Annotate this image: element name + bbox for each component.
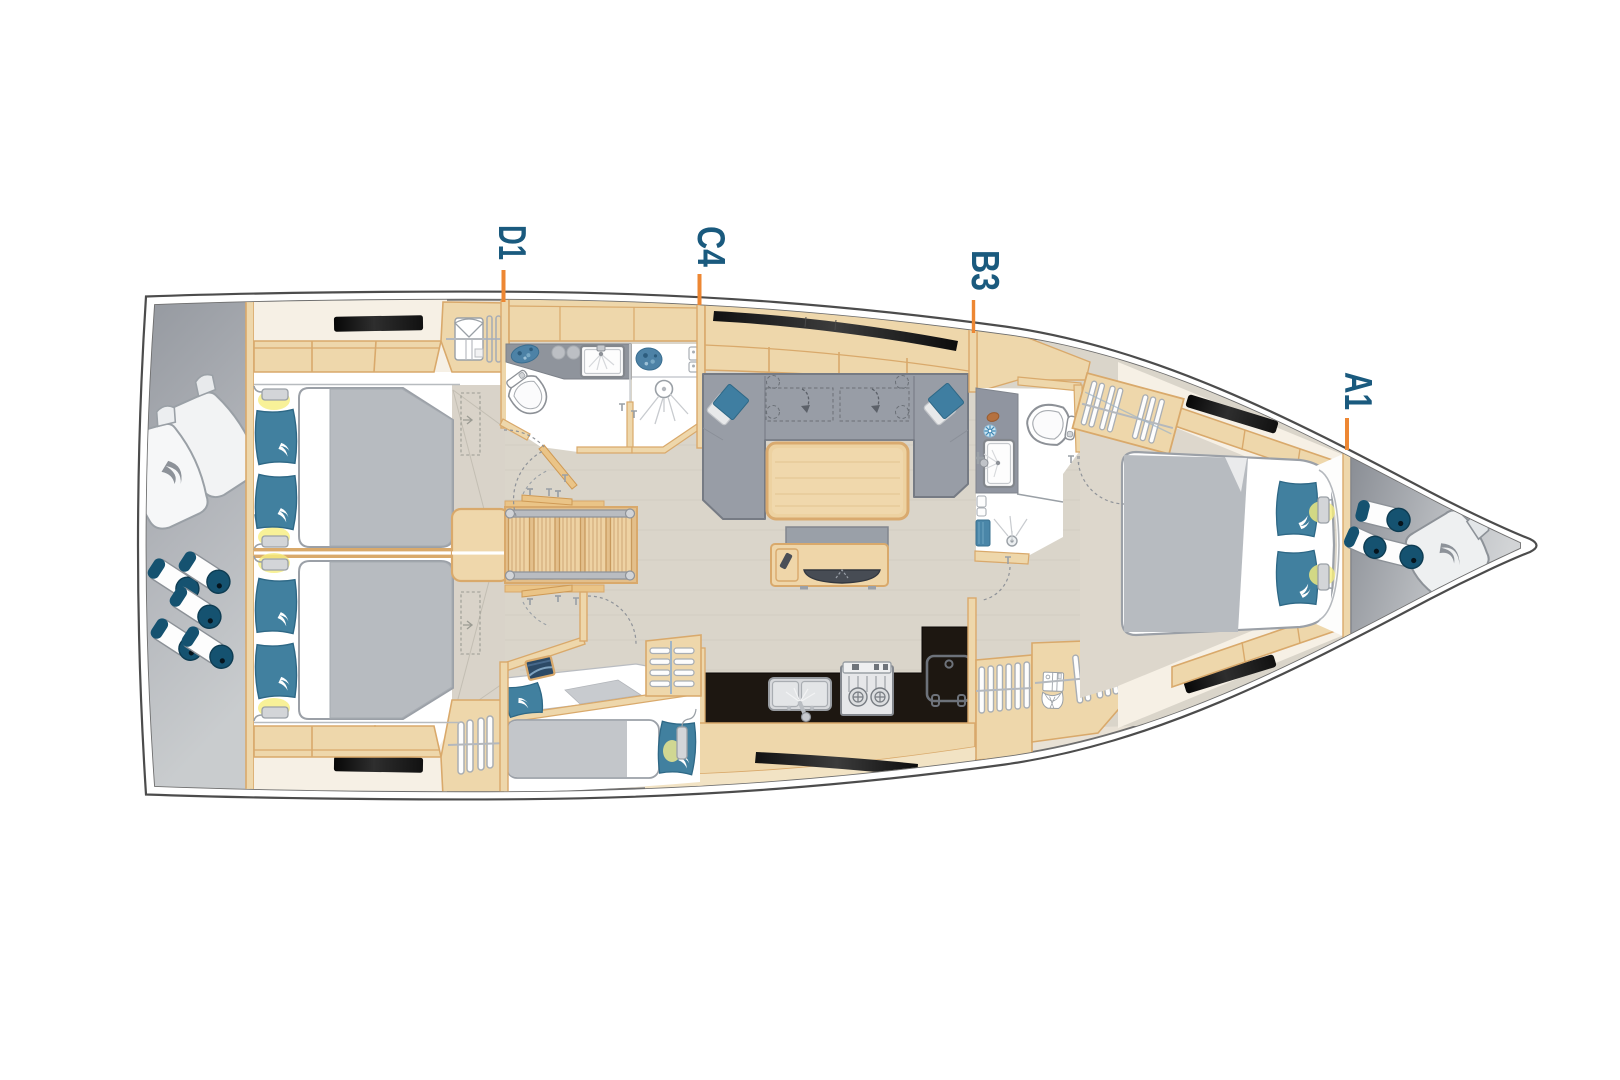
svg-text:A1: A1 <box>1336 372 1379 410</box>
svg-text:C4: C4 <box>689 226 732 267</box>
svg-text:B3: B3 <box>963 250 1006 291</box>
svg-text:D1: D1 <box>490 225 533 260</box>
